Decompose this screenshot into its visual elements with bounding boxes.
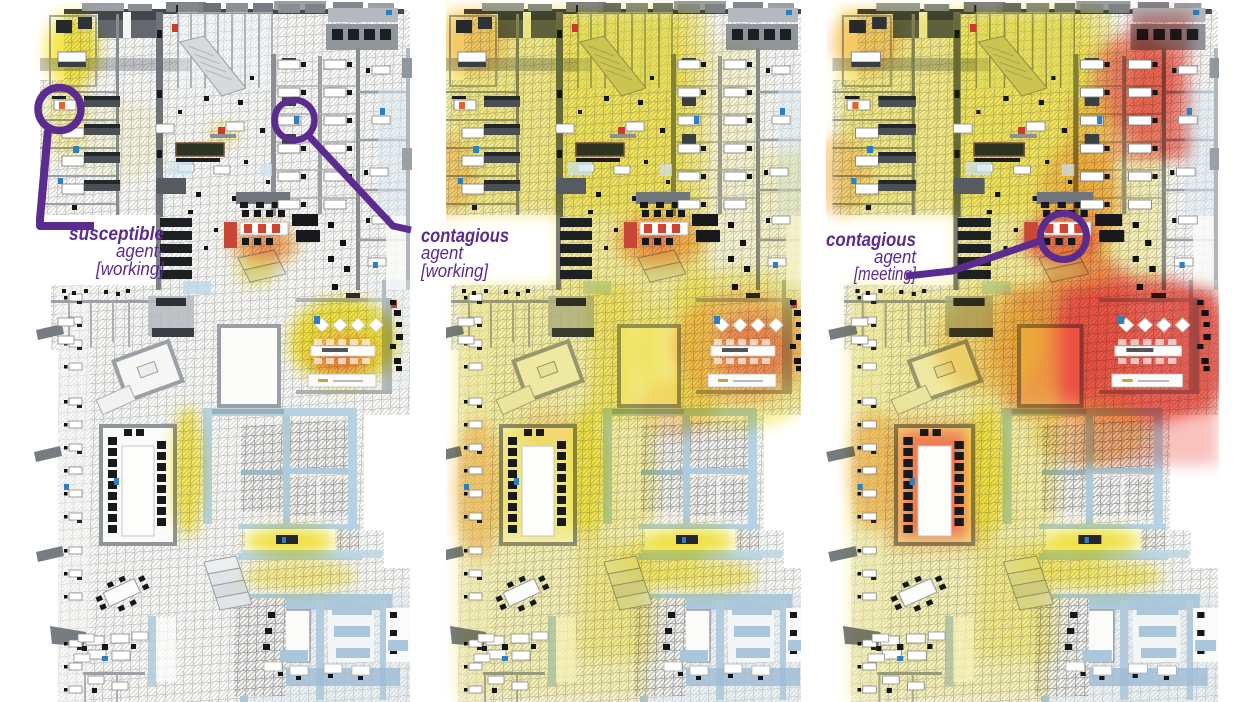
svg-text:agent-: agent- [116,241,164,261]
svg-text:[working]: [working] [95,259,165,279]
svg-text:agent: agent [421,243,464,263]
svg-text:[meeting]: [meeting] [853,264,917,284]
svg-text:[working]: [working] [420,261,489,281]
